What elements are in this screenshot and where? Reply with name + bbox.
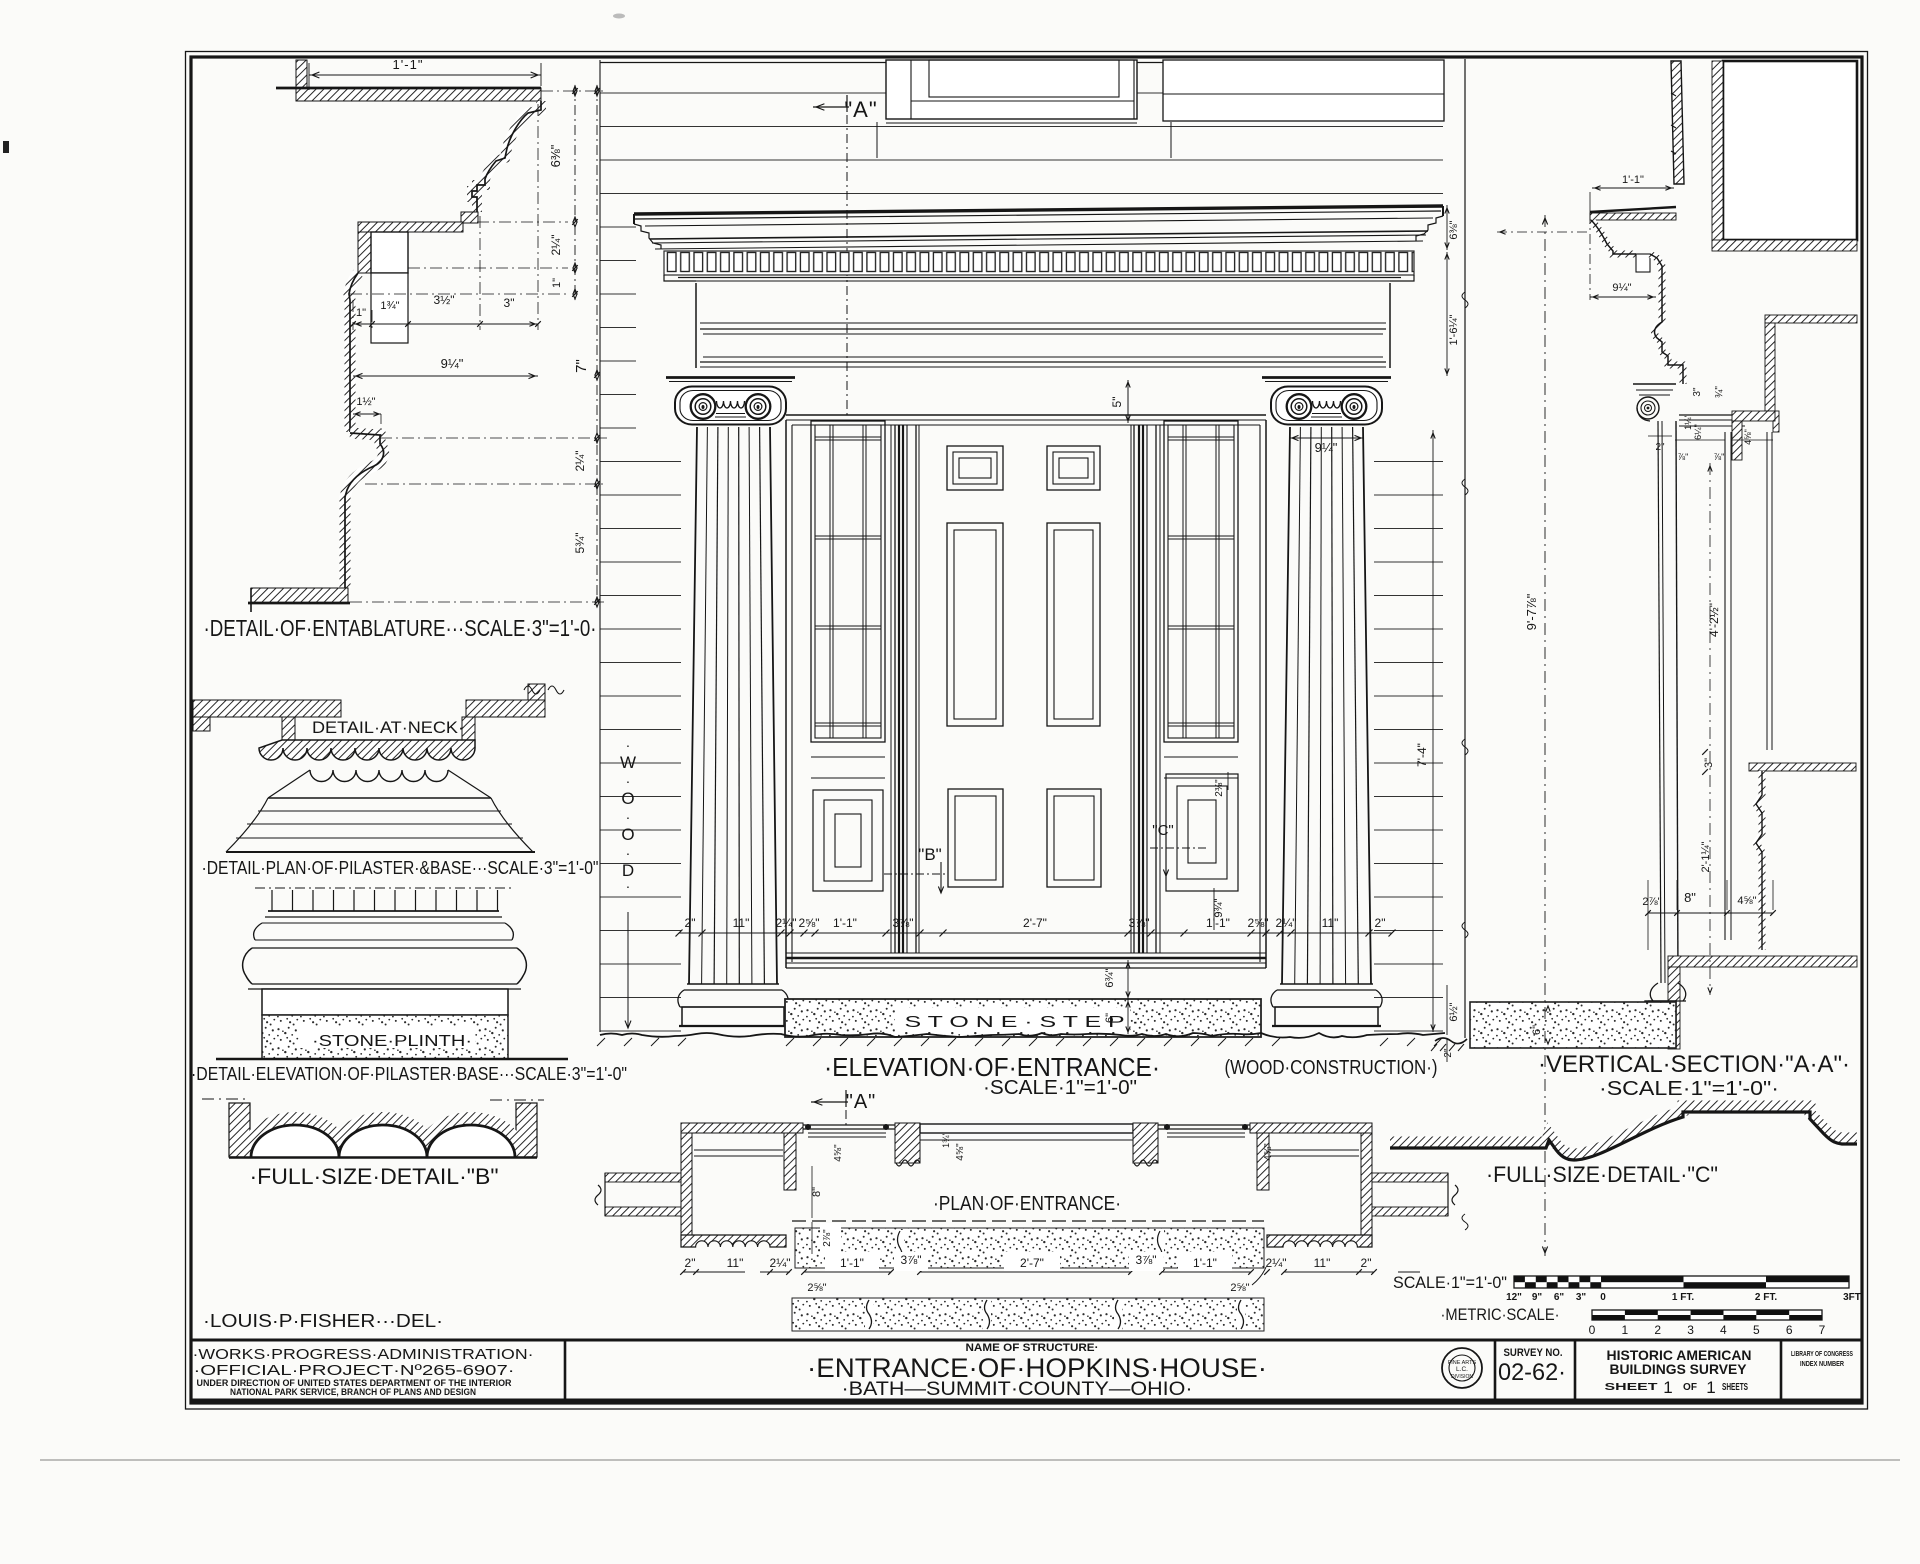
- svg-text:·DETAIL·PLAN·OF·PILASTER·&BASE: ·DETAIL·PLAN·OF·PILASTER·&BASE···SCALE·3…: [202, 858, 599, 878]
- svg-text:02-62·: 02-62·: [1498, 1359, 1566, 1386]
- svg-text:3⅞": 3⅞": [1129, 916, 1150, 930]
- svg-text:4: 4: [1720, 1323, 1727, 1337]
- svg-text:2¼": 2¼": [776, 916, 797, 930]
- svg-text:7'-4": 7'-4": [1415, 743, 1429, 767]
- svg-text:·SCALE·1"=1'-0": ·SCALE·1"=1'-0": [983, 1077, 1137, 1099]
- svg-text:"C": "C": [1152, 822, 1173, 839]
- svg-text:·: ·: [626, 773, 631, 789]
- svg-text:(WOOD·CONSTRUCTION·): (WOOD·CONSTRUCTION·): [1225, 1057, 1438, 1079]
- svg-text:4'-2½": 4'-2½": [1707, 603, 1721, 637]
- svg-text:2: 2: [1654, 1323, 1661, 1337]
- svg-text:2": 2": [1655, 442, 1665, 453]
- svg-text:6": 6": [1104, 1013, 1116, 1023]
- svg-text:11": 11": [1322, 916, 1339, 930]
- svg-text:6¼": 6¼": [1693, 424, 1703, 440]
- svg-text:2'-7": 2'-7": [1023, 916, 1047, 930]
- svg-text:·METRIC·SCALE·: ·METRIC·SCALE·: [1441, 1305, 1560, 1324]
- svg-text:2": 2": [1361, 1256, 1372, 1270]
- svg-text:2⅜": 2⅜": [1214, 779, 1225, 797]
- svg-text:¾": ¾": [1714, 386, 1725, 398]
- svg-text:·SCALE·1"=1'-0"·: ·SCALE·1"=1'-0"·: [1599, 1078, 1779, 1100]
- svg-text:"B": "B": [918, 845, 941, 864]
- svg-text:2": 2": [685, 916, 696, 930]
- svg-text:2'-7": 2'-7": [1020, 1256, 1044, 1270]
- svg-text:OF: OF: [1683, 1382, 1697, 1393]
- svg-text:6½": 6½": [1448, 1002, 1460, 1021]
- svg-text:9": 9": [1532, 1292, 1543, 1303]
- svg-text:3": 3": [1576, 1292, 1587, 1303]
- svg-text:SCALE·1"=1'-0": SCALE·1"=1'-0": [1393, 1273, 1507, 1292]
- svg-text:11": 11": [733, 916, 750, 930]
- svg-text:2⅞": 2⅞": [1642, 896, 1661, 908]
- svg-text:·DETAIL·OF·ENTABLATURE···SCALE: ·DETAIL·OF·ENTABLATURE···SCALE·3"=1'-0·: [204, 615, 597, 641]
- svg-text:7: 7: [1819, 1323, 1826, 1337]
- svg-text:4⅝": 4⅝": [1263, 1143, 1274, 1161]
- svg-text:L.C.: L.C.: [1456, 1366, 1468, 1373]
- svg-text:5¾": 5¾": [573, 533, 587, 554]
- svg-text:1": 1": [356, 307, 366, 319]
- svg-text:1'-1": 1'-1": [833, 916, 857, 930]
- svg-text:·: ·: [626, 878, 631, 894]
- svg-text:SURVEY NO.: SURVEY NO.: [1504, 1347, 1563, 1359]
- svg-text:2¼": 2¼": [573, 451, 587, 472]
- svg-text:1'-1": 1'-1": [1193, 1256, 1217, 1270]
- svg-text:6¾": 6¾": [1104, 968, 1116, 987]
- svg-text:3⅞": 3⅞": [893, 916, 914, 930]
- svg-text:2'-1¼": 2'-1¼": [1700, 841, 1712, 872]
- svg-text:4⅝": 4⅝": [833, 1144, 844, 1162]
- svg-text:0: 0: [1589, 1323, 1596, 1337]
- svg-text:2 FT.: 2 FT.: [1755, 1292, 1777, 1303]
- svg-text:BUILDINGS SURVEY: BUILDINGS SURVEY: [1610, 1361, 1748, 1377]
- svg-text:⅞": ⅞": [1714, 452, 1725, 462]
- svg-text:LIBRARY OF CONGRESS: LIBRARY OF CONGRESS: [1791, 1349, 1853, 1358]
- svg-text:4⅝": 4⅝": [1737, 895, 1756, 907]
- svg-text:9¼": 9¼": [1315, 440, 1338, 455]
- svg-text:·VERTICAL·SECTION·"A·A"·: ·VERTICAL·SECTION·"A·A"·: [1538, 1051, 1850, 1078]
- svg-text:O: O: [621, 789, 634, 808]
- svg-text:6⅜": 6⅜": [1448, 220, 1460, 239]
- svg-text:3⅞": 3⅞": [1136, 1253, 1157, 1267]
- svg-text:2⅝": 2⅝": [807, 1282, 826, 1294]
- svg-text:5: 5: [1753, 1323, 1760, 1337]
- svg-text:·OFFICIAL·PROJECT·Nº265-6907·: ·OFFICIAL·PROJECT·Nº265-6907·: [194, 1362, 515, 1379]
- svg-text:3": 3": [1692, 387, 1703, 397]
- svg-text:7": 7": [573, 359, 590, 373]
- svg-text:·WORKS·PROGRESS·ADMINISTRATION: ·WORKS·PROGRESS·ADMINISTRATION·: [193, 1346, 534, 1363]
- svg-text:6⅜": 6⅜": [548, 144, 563, 167]
- svg-text:3½": 3½": [434, 293, 455, 307]
- svg-text:8": 8": [1684, 890, 1696, 905]
- svg-text:2⅝": 2⅝": [799, 916, 820, 930]
- svg-text:4⅝": 4⅝": [955, 1143, 966, 1161]
- svg-text:·STONE·PLINTH·: ·STONE·PLINTH·: [312, 1033, 472, 1050]
- svg-text:⅞": ⅞": [1678, 452, 1689, 462]
- svg-text:1": 1": [551, 278, 563, 288]
- svg-text:3": 3": [504, 296, 515, 310]
- svg-text:·: ·: [626, 737, 631, 753]
- svg-text:5": 5": [1110, 397, 1124, 408]
- svg-text:SHEETS: SHEETS: [1722, 1382, 1748, 1393]
- svg-text:SHEET: SHEET: [1605, 1382, 1658, 1393]
- svg-text:1: 1: [1622, 1323, 1629, 1337]
- svg-text:3: 3: [1687, 1323, 1694, 1337]
- svg-text:1'-1": 1'-1": [1622, 174, 1644, 186]
- svg-text:1 FT.: 1 FT.: [1672, 1292, 1694, 1303]
- svg-text:DIVISION: DIVISION: [1451, 1374, 1473, 1380]
- svg-text:2⅞": 2⅞": [822, 1229, 833, 1247]
- svg-text:6": 6": [1531, 1025, 1543, 1035]
- svg-text:4⅝": 4⅝": [1743, 429, 1753, 445]
- svg-text:2¼": 2¼": [770, 1256, 791, 1270]
- svg-text:·DETAIL·ELEVATION·OF·PILASTER·: ·DETAIL·ELEVATION·OF·PILASTER·BASE···SCA…: [191, 1064, 627, 1084]
- svg-text:2": 2": [685, 1256, 696, 1270]
- svg-text:·: ·: [626, 845, 631, 861]
- svg-text:6": 6": [1554, 1292, 1565, 1303]
- svg-text:INDEX NUMBER: INDEX NUMBER: [1800, 1359, 1844, 1368]
- svg-text:·FULL·SIZE·DETAIL·"B": ·FULL·SIZE·DETAIL·"B": [250, 1164, 499, 1189]
- svg-text:1¾": 1¾": [380, 300, 399, 312]
- svg-text:2": 2": [1443, 1048, 1454, 1058]
- svg-text:9¼": 9¼": [1612, 282, 1631, 294]
- svg-text:"A": "A": [844, 97, 877, 122]
- svg-text:1'-1": 1'-1": [393, 57, 424, 72]
- svg-text:2¼": 2¼": [1276, 916, 1297, 930]
- svg-text:1½": 1½": [356, 396, 375, 408]
- svg-text:12": 12": [1506, 1292, 1522, 1303]
- svg-text:3FT: 3FT: [1843, 1292, 1861, 1303]
- svg-text:DETAIL·AT·NECK·: DETAIL·AT·NECK·: [312, 718, 464, 737]
- svg-text:6: 6: [1786, 1323, 1793, 1337]
- svg-text:1'-1": 1'-1": [840, 1256, 864, 1270]
- svg-text:NATIONAL PARK SERVICE, BRANCH: NATIONAL PARK SERVICE, BRANCH OF PLANS A…: [230, 1387, 476, 1397]
- svg-text:2¼": 2¼": [549, 235, 563, 256]
- svg-text:0: 0: [1600, 1292, 1606, 1303]
- svg-text:8": 8": [811, 1187, 823, 1197]
- svg-text:W: W: [620, 753, 636, 772]
- svg-text:3⅞": 3⅞": [901, 1253, 922, 1267]
- svg-text:·LOUIS·P·FISHER···DEL·: ·LOUIS·P·FISHER···DEL·: [203, 1311, 443, 1331]
- svg-text:3": 3": [1703, 758, 1715, 768]
- svg-text:O: O: [621, 825, 634, 844]
- svg-text:·: ·: [626, 809, 631, 825]
- svg-text:1: 1: [1706, 1378, 1715, 1397]
- svg-text:1: 1: [1663, 1378, 1672, 1397]
- svg-text:·PLAN·OF·ENTRANCE·: ·PLAN·OF·ENTRANCE·: [933, 1193, 1121, 1215]
- svg-text:1¾": 1¾": [941, 1132, 951, 1148]
- svg-text:2¼": 2¼": [1266, 1256, 1287, 1270]
- svg-text:9¼": 9¼": [441, 356, 464, 371]
- svg-text:9'-7⅞": 9'-7⅞": [1524, 593, 1539, 630]
- svg-text:2⅝": 2⅝": [1230, 1282, 1249, 1294]
- svg-text:11": 11": [727, 1256, 744, 1270]
- svg-text:1¼": 1¼": [1683, 414, 1693, 430]
- svg-text:·BATH—SUMMIT·COUNTY—OHIO·: ·BATH—SUMMIT·COUNTY—OHIO·: [842, 1379, 1193, 1400]
- svg-text:11": 11": [1314, 1256, 1331, 1270]
- svg-text:1'-6¼": 1'-6¼": [1448, 314, 1460, 345]
- svg-text:9¾": 9¾": [1213, 898, 1225, 917]
- svg-text:·FULL·SIZE·DETAIL·"C": ·FULL·SIZE·DETAIL·"C": [1486, 1162, 1718, 1187]
- svg-text:2⅝": 2⅝": [1248, 916, 1269, 930]
- svg-text:2": 2": [1375, 916, 1386, 930]
- svg-text:"A": "A": [846, 1091, 877, 1113]
